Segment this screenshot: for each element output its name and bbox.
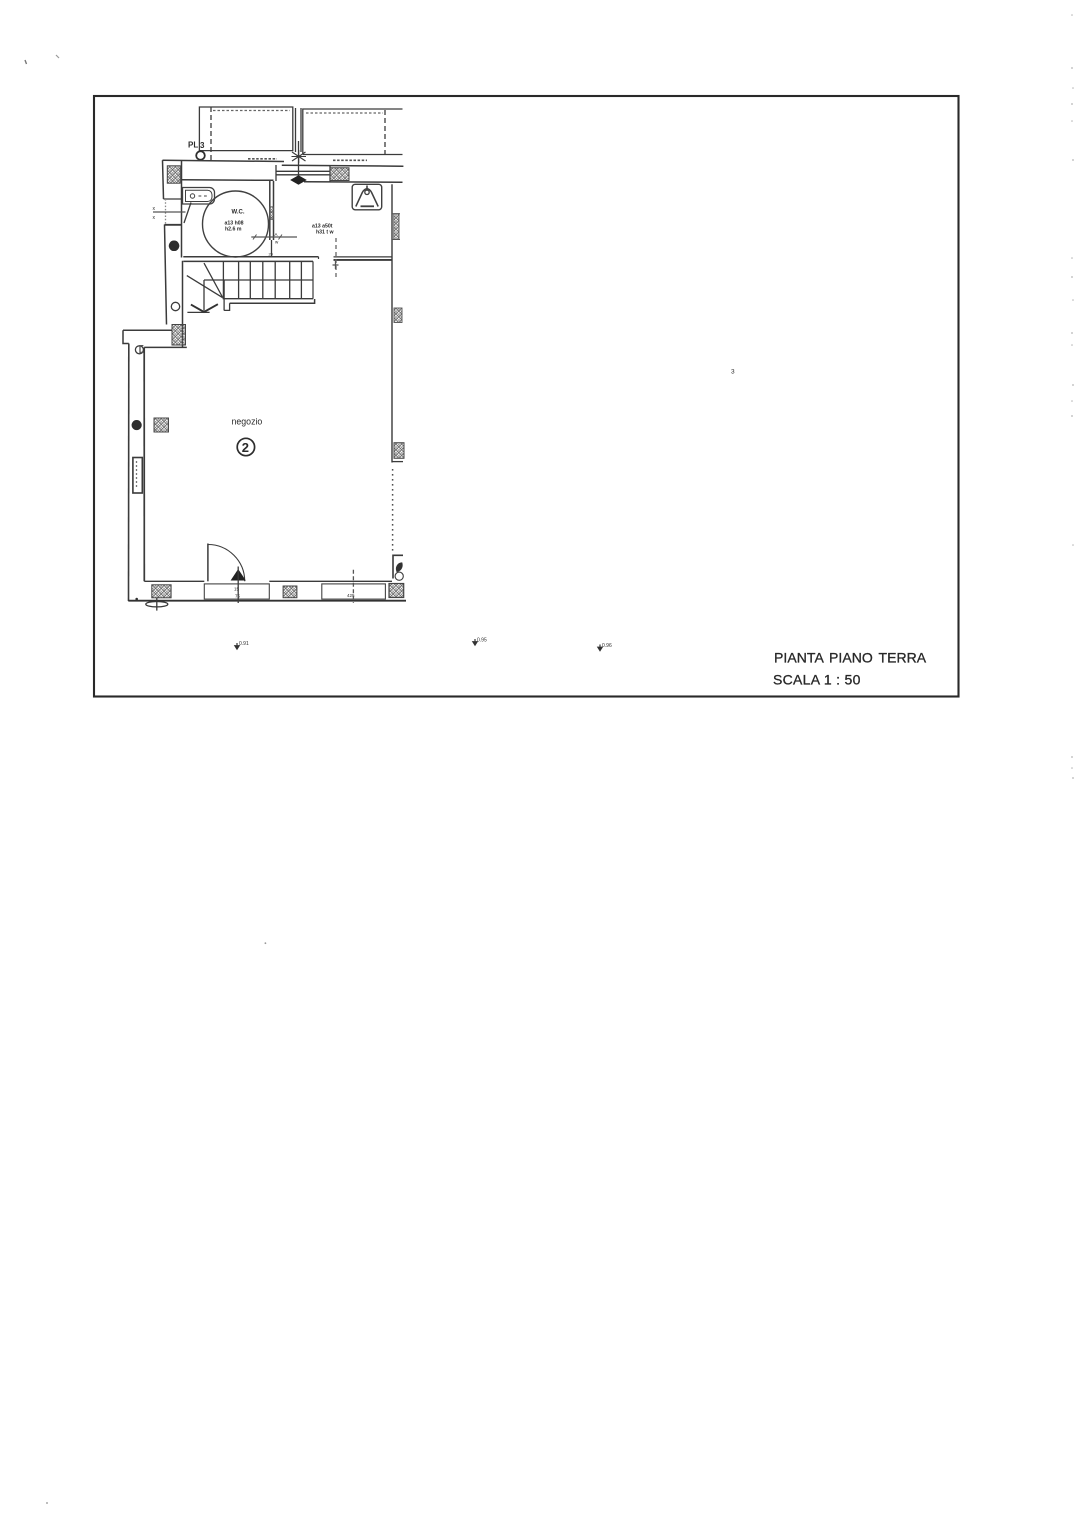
svg-text:3: 3 [200, 141, 205, 150]
svg-text:PIANTA PIANO TERRA: PIANTA PIANO TERRA [774, 650, 927, 666]
svg-text:SCALA 1 : 50: SCALA 1 : 50 [773, 672, 861, 688]
svg-text:A: A [275, 232, 278, 237]
svg-text:0.96: 0.96 [602, 643, 612, 649]
svg-text:W.C.: W.C. [232, 210, 245, 216]
svg-text:h2.6 m: h2.6 m [225, 227, 242, 233]
svg-text:0.95: 0.95 [477, 638, 487, 644]
svg-text:2: 2 [242, 440, 249, 455]
svg-text:a13 h08: a13 h08 [225, 220, 244, 226]
svg-text:h31 t w: h31 t w [316, 230, 335, 236]
svg-text:0.91: 0.91 [239, 641, 249, 647]
svg-text:PL: PL [188, 141, 198, 150]
svg-text:negozio: negozio [232, 417, 263, 427]
svg-text:3: 3 [731, 369, 735, 376]
